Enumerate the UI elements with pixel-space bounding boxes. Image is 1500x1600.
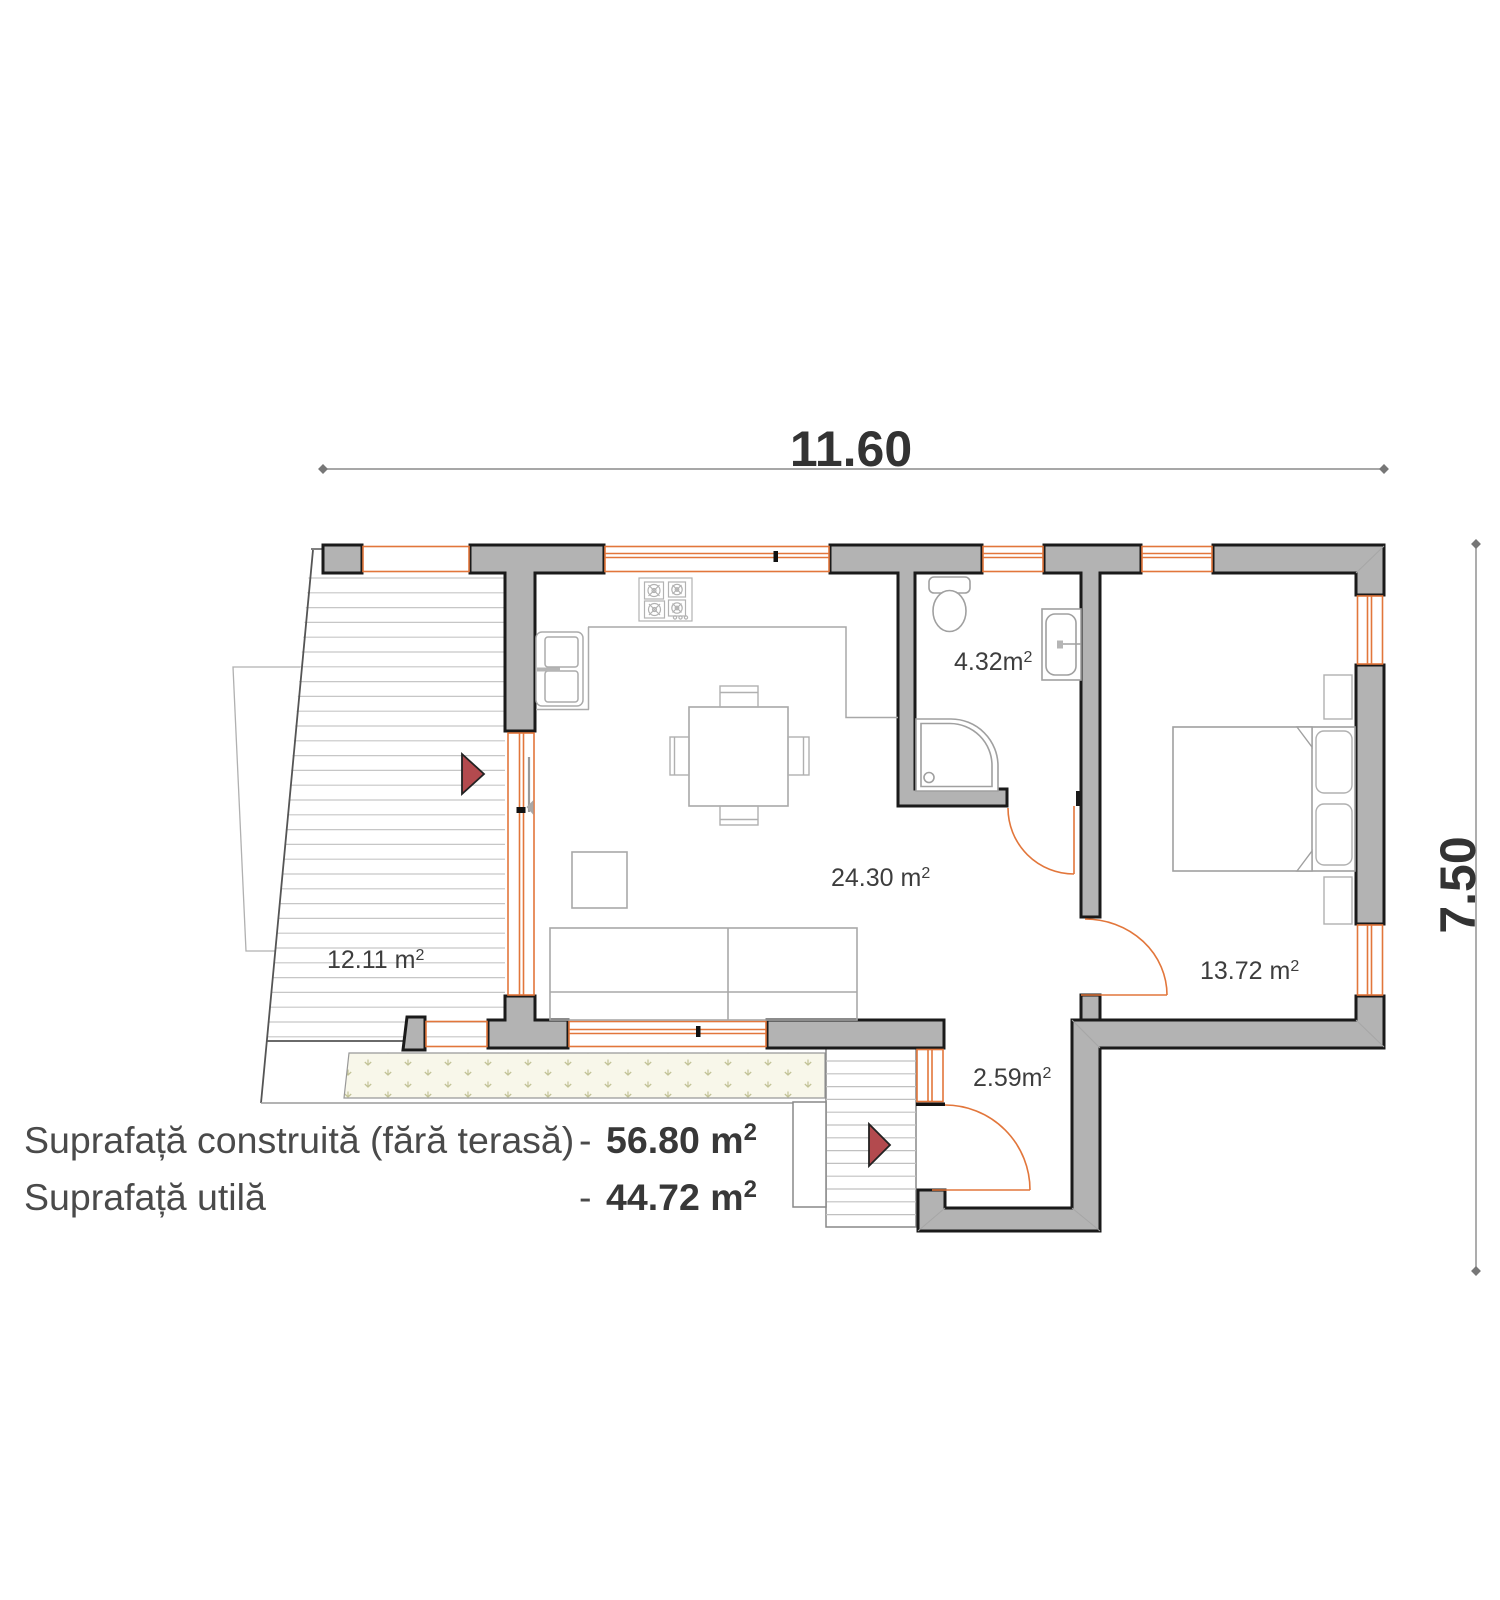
- svg-text:12.11 m2: 12.11 m2: [327, 946, 424, 974]
- svg-text:Suprafață construită (fără ter: Suprafață construită (fără terasă): [24, 1119, 574, 1161]
- svg-text:-: -: [579, 1119, 592, 1161]
- svg-text:7.50: 7.50: [1430, 836, 1486, 933]
- svg-text:-: -: [579, 1176, 592, 1218]
- svg-text:2.59m2: 2.59m2: [973, 1064, 1051, 1092]
- svg-text:13.72 m2: 13.72 m2: [1200, 957, 1299, 985]
- svg-text:56.80 m2: 56.80 m2: [606, 1119, 757, 1161]
- svg-text:4.32m2: 4.32m2: [954, 648, 1032, 676]
- svg-text:11.60: 11.60: [790, 421, 912, 477]
- svg-text:44.72 m2: 44.72 m2: [606, 1176, 757, 1218]
- svg-text:24.30 m2: 24.30 m2: [831, 864, 930, 892]
- svg-text:Suprafață utilă: Suprafață utilă: [24, 1176, 266, 1218]
